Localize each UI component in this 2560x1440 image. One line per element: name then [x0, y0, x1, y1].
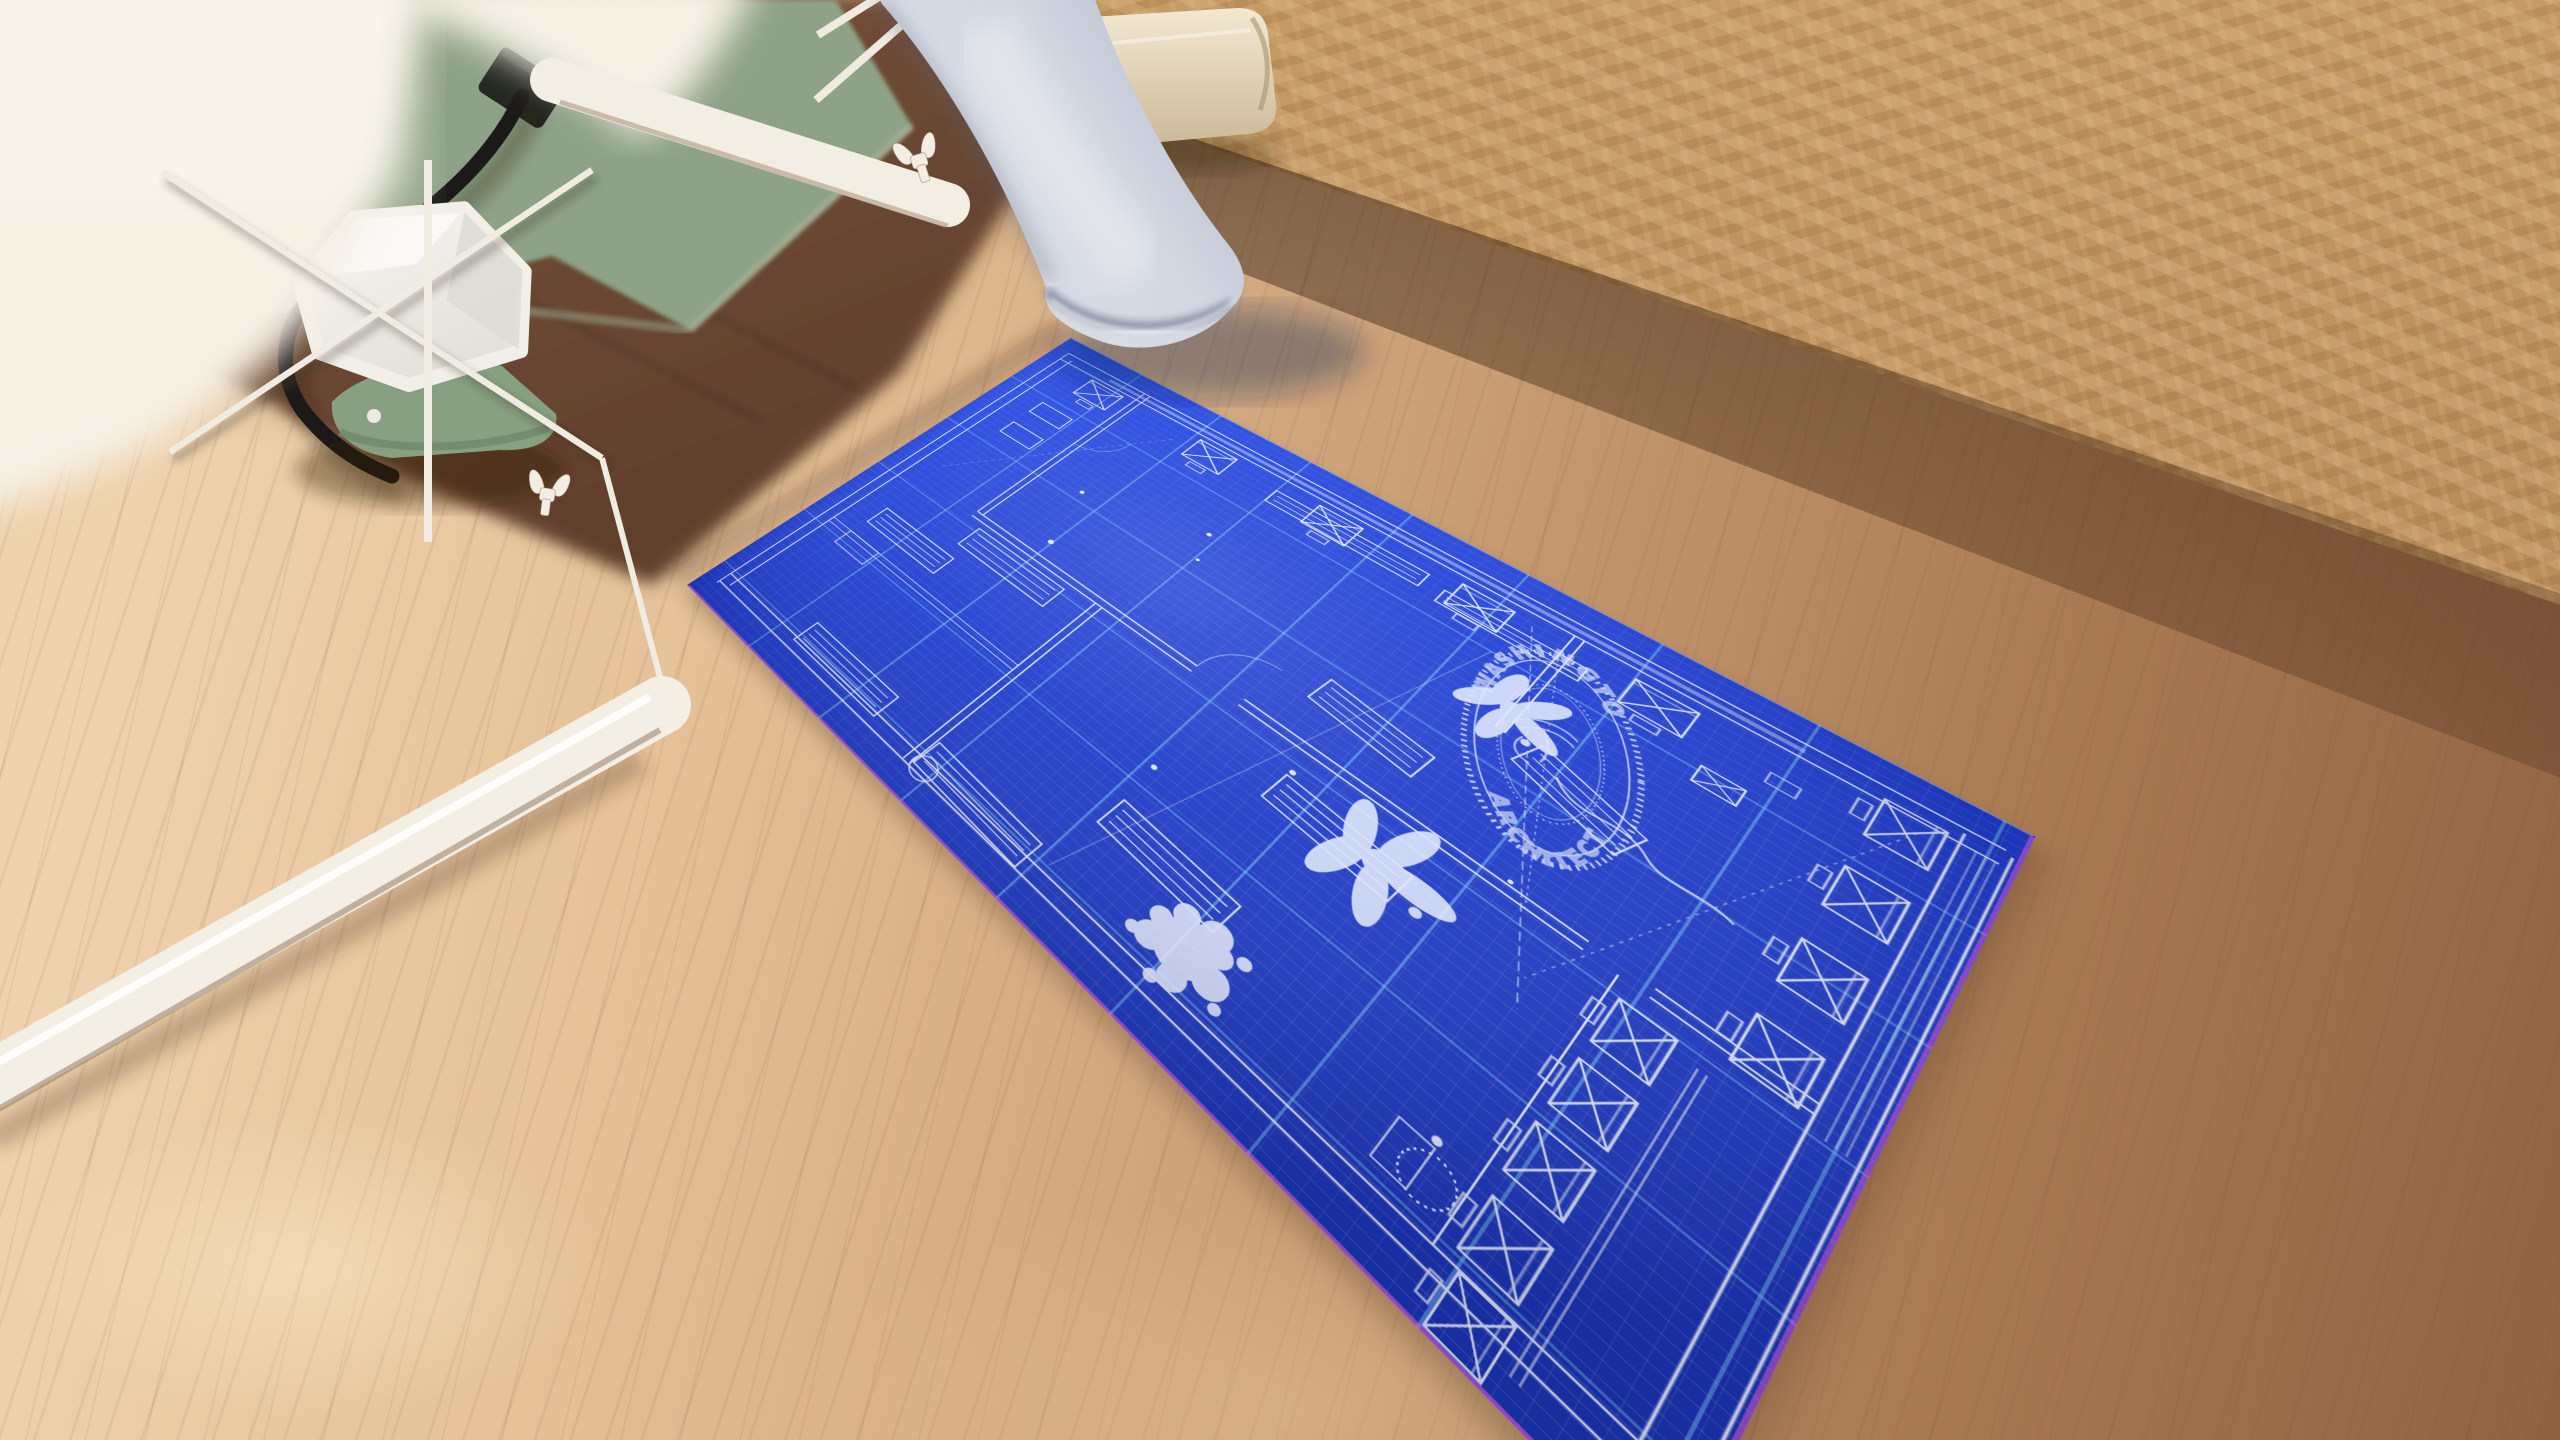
game-scene: WASHINGTON ARCHITECT	[0, 0, 2560, 1440]
